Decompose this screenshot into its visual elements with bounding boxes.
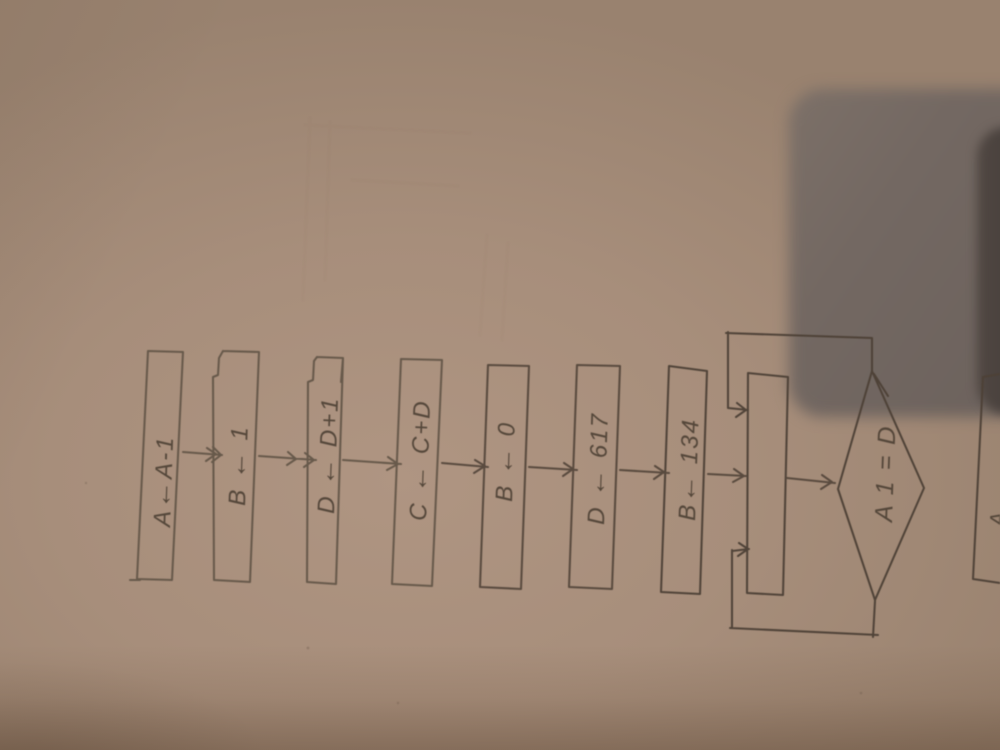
- svg-text:B ← 1: B ← 1: [220, 424, 254, 506]
- svg-text:C ← C+D: C ← C+D: [401, 399, 436, 521]
- svg-text:D ← 617: D ← 617: [579, 411, 614, 525]
- svg-text:B ← 0: B ← 0: [487, 420, 521, 502]
- svg-text:B← 134: B← 134: [670, 417, 705, 521]
- svg-text:A←A-1: A←A-1: [145, 435, 179, 529]
- svg-text:D ← D+1: D ← D+1: [309, 396, 344, 514]
- svg-text:A 1 = D: A 1 = D: [870, 424, 901, 524]
- svg-text:A: A: [985, 510, 1000, 530]
